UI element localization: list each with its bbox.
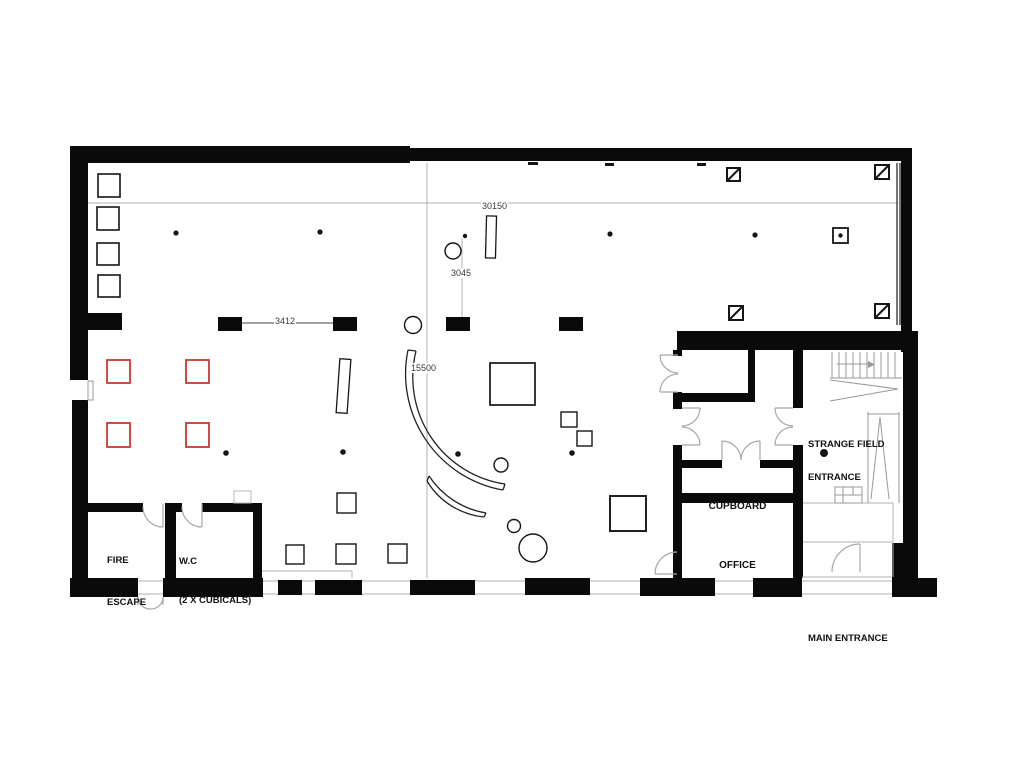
- floor-circles: [405, 243, 548, 562]
- stairs: [830, 352, 902, 401]
- entrance-lobby-lines: [802, 503, 893, 577]
- wc-label: W.C (2 X CUBICALS): [179, 529, 251, 620]
- dimension-15500: 15500: [410, 363, 437, 373]
- display-plinths: [234, 363, 646, 564]
- setting-out-ticks: [528, 162, 706, 166]
- main-entrance-label: MAIN ENTRANCE: [808, 606, 888, 658]
- fire-escape-label: FIRE ESCAPE: [107, 526, 146, 624]
- office-label: OFFICE: [682, 533, 793, 585]
- dimension-3412: 3412: [274, 316, 296, 326]
- dimension-3045: 3045: [450, 268, 472, 278]
- junction-box-symbol: [833, 228, 848, 243]
- slash-square-symbols: [727, 165, 889, 320]
- wall-panels: [97, 174, 120, 297]
- display-boards: [336, 216, 496, 413]
- partition-double-line: [897, 163, 900, 325]
- red-floor-markers: [107, 360, 209, 447]
- strange-field-entrance-label: STRANGE FIELD ENTRANCE: [808, 417, 885, 494]
- structural-columns: [218, 317, 583, 331]
- floor-plan-page: FIRE ESCAPE W.C (2 X CUBICALS) CUPBOARD …: [0, 0, 1024, 768]
- dimension-30150: 30150: [481, 201, 508, 211]
- cupboard-label: CUPBOARD: [682, 474, 793, 526]
